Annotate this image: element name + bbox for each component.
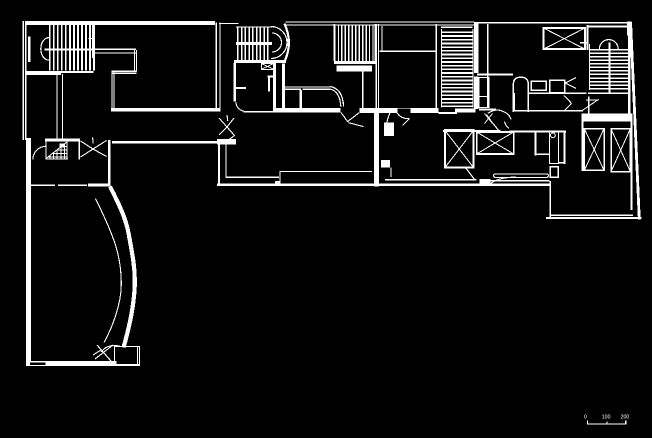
svg-text:100: 100 — [602, 414, 611, 420]
svg-text:200: 200 — [621, 414, 630, 420]
svg-text:0: 0 — [584, 414, 587, 420]
